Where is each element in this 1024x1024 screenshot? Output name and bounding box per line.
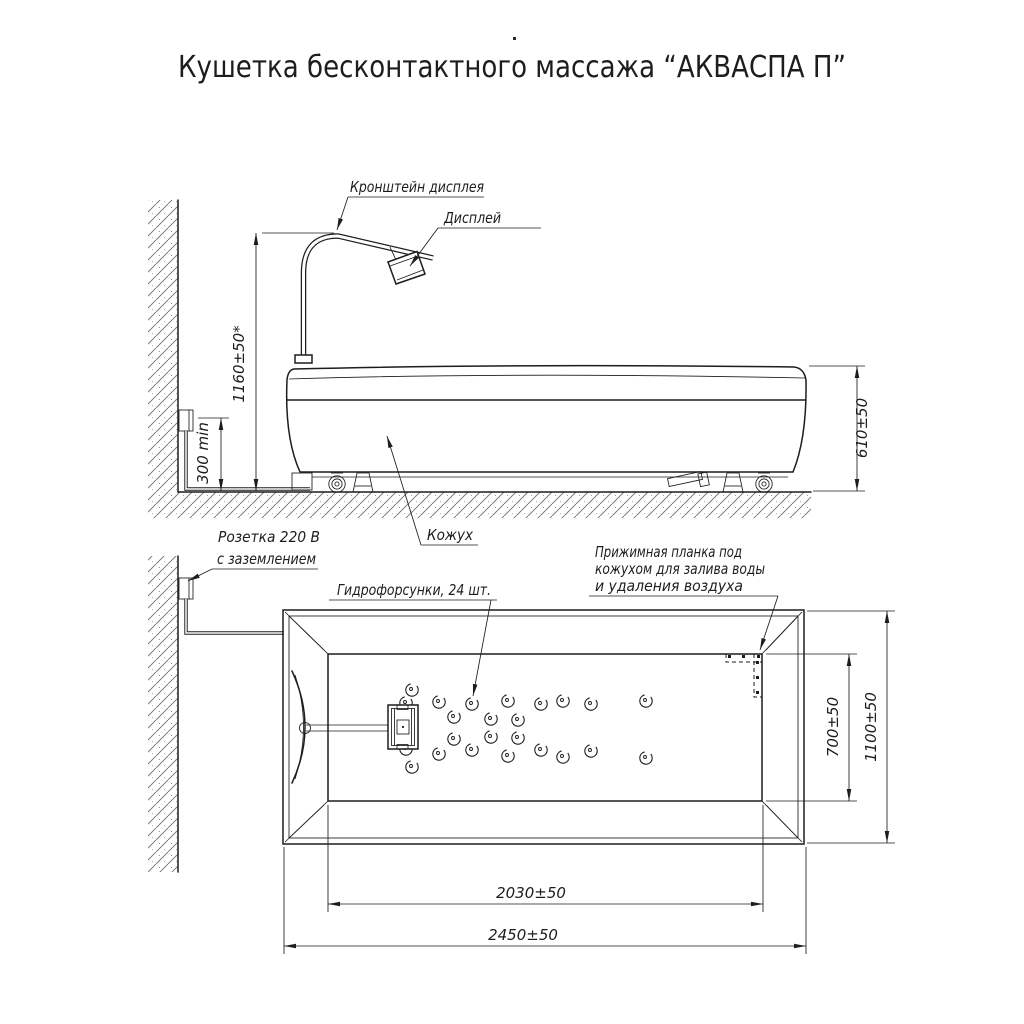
socket-label-line1: Розетка 220 В: [218, 528, 320, 546]
hydro-nozzle: [554, 692, 571, 709]
dim-socket-height: 300 min: [194, 418, 229, 491]
hydro-nozzle: [463, 695, 480, 712]
hydro-nozzle: [482, 728, 499, 745]
label-clamping-bar: Прижимная планка под кожухом для залива …: [589, 543, 778, 650]
left-foot: [353, 473, 373, 492]
cover-label-text: Кожух: [427, 526, 473, 544]
hydro-nozzle: [582, 695, 599, 712]
label-nozzles: Гидрофорсунки, 24 шт.: [329, 581, 497, 696]
dim-couch-height: 610±50: [809, 366, 871, 491]
hydro-nozzle: [430, 745, 447, 762]
hydro-nozzle: [403, 758, 420, 775]
dim-text-2030: 2030±50: [496, 884, 566, 902]
outer-rim-inner-line: [289, 616, 798, 838]
title-block: Кушетка бесконтактного массажа “АКВАСПА …: [178, 37, 846, 85]
dim-text-1160: 1160±50*: [230, 325, 248, 403]
dim-text-300: 300 min: [194, 422, 212, 484]
hydro-nozzle: [532, 741, 549, 758]
hydro-nozzle: [554, 748, 571, 765]
hydro-nozzle: [509, 711, 526, 728]
nozzle-carriage: [300, 705, 419, 749]
top-view: Гидрофорсунки, 24 шт. Прижимная планка п…: [148, 543, 895, 954]
left-caster-wheel: [329, 473, 345, 492]
power-cable-top: [186, 599, 284, 633]
drawing-page: Кушетка бесконтактного массажа “АКВАСПА …: [0, 0, 1024, 1024]
nozzle-field: [397, 681, 654, 775]
hydro-nozzle: [532, 695, 549, 712]
power-socket-top: [179, 578, 193, 599]
technical-drawing: Кушетка бесконтактного массажа “АКВАСПА …: [0, 0, 1024, 1024]
clamp-label-line2: кожухом для залива воды: [595, 560, 765, 578]
bracket-label-text: Кронштейн дисплея: [350, 178, 484, 196]
clamping-bar: [726, 654, 762, 697]
hydro-nozzle: [403, 681, 420, 698]
hydro-nozzle: [499, 692, 516, 709]
hydro-nozzle: [637, 749, 654, 766]
dim-outer-width: 1100±50: [807, 611, 895, 843]
hydro-nozzle: [463, 741, 480, 758]
dim-height-to-bracket: 1160±50*: [230, 233, 334, 491]
bracket-base: [295, 355, 312, 363]
side-view: 1160±50* 300 min 610±50 Кронштейн диспле…: [148, 178, 871, 581]
hydro-nozzle: [445, 708, 462, 725]
dim-text-1100: 1100±50: [862, 692, 880, 762]
right-foot: [723, 473, 743, 492]
dim-inner-length: 2030±50: [328, 805, 763, 912]
outer-rim: [283, 610, 804, 844]
lid-top-inner-line: [289, 375, 805, 379]
rim-bevels: [285, 612, 802, 842]
clamp-label-line3: и удаления воздуха: [595, 577, 743, 595]
head-end-arc: [292, 671, 305, 783]
hydro-nozzle: [509, 729, 526, 746]
label-cover: Кожух: [387, 436, 478, 545]
clamp-label-line1: Прижимная планка под: [595, 543, 742, 561]
hydro-nozzle: [430, 693, 447, 710]
hydro-nozzle: [582, 742, 599, 759]
wall-hatch-side: [148, 200, 178, 518]
hydro-nozzle: [445, 730, 462, 747]
hydro-nozzle: [482, 710, 499, 727]
couch-cover-outline: [287, 366, 806, 472]
drawing-title: Кушетка бесконтактного массажа “АКВАСПА …: [178, 50, 846, 85]
couch-top-frame: [283, 610, 804, 844]
hydro-nozzle: [499, 747, 516, 764]
nozzles-label-text: Гидрофорсунки, 24 шт.: [337, 581, 491, 599]
dim-inner-width: 700±50: [766, 654, 857, 801]
power-socket-side: [179, 410, 193, 431]
display-label-text: Дисплей: [443, 209, 501, 227]
drain-lever: [668, 472, 710, 487]
dim-text-610: 610±50: [853, 398, 871, 458]
socket-label-line2: с заземлением: [217, 550, 316, 568]
label-socket: Розетка 220 В с заземлением: [188, 528, 320, 581]
dim-text-700: 700±50: [824, 697, 842, 757]
right-caster-wheel: [756, 473, 772, 492]
artifact-dot: [513, 37, 516, 40]
floor-hatch-side: [178, 492, 811, 518]
dim-text-2450: 2450±50: [488, 926, 558, 944]
wall-hatch-top: [148, 556, 178, 872]
couch-side-view: [287, 366, 806, 490]
hydro-nozzle: [637, 692, 654, 709]
display-head: [388, 252, 425, 285]
